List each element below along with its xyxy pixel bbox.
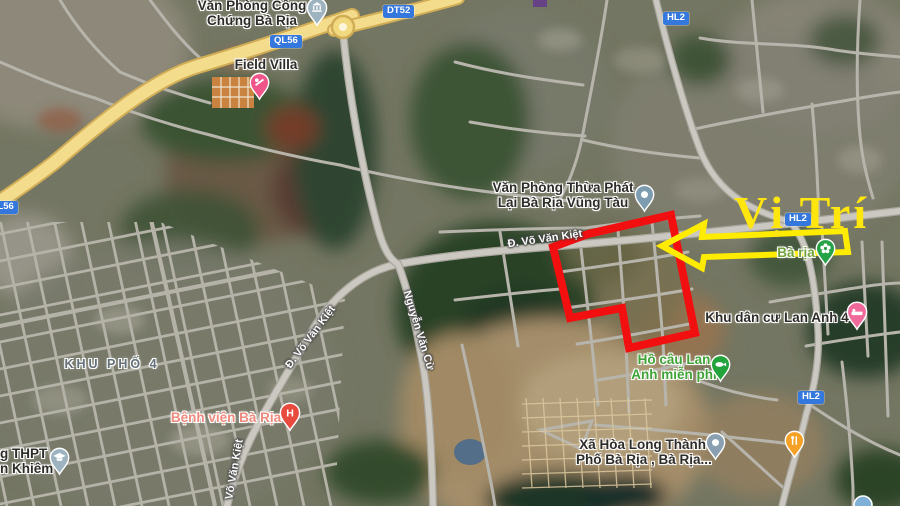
road-badge-ql56-partial: QL56: [0, 201, 18, 214]
label-ho-cau-lan-anh[interactable]: Hồ câu Lan Anh miễn phí: [631, 352, 717, 382]
label-xa-hoa-long[interactable]: Xã Hòa Long Thành Phố Bà Rịa , Bà Rịa...: [576, 437, 706, 467]
satellite-map-canvas[interactable]: DT52 QL56 QL56 HL2 HL2 HL2 Văn Phòng Côn…: [0, 0, 900, 506]
ba-ria-park-marker[interactable]: [815, 238, 836, 267]
label-ba-ria-park[interactable]: Bà rịa: [777, 245, 815, 260]
label-khu-pho-4: KHU PHỐ 4: [64, 357, 159, 372]
partial-marker[interactable]: [851, 494, 875, 506]
road-badge-hl2-top: HL2: [663, 12, 689, 25]
place-dot-icon: [712, 439, 719, 446]
museum-marker[interactable]: [306, 0, 328, 27]
road-badge-dt52: DT52: [383, 5, 414, 18]
label-van-phong-cong-chung[interactable]: Văn Phòng Công Chứng Bà Rịa: [198, 0, 307, 28]
lan-anh-4-marker[interactable]: [846, 301, 868, 331]
place-dot-icon: [641, 191, 648, 198]
ho-cau-marker[interactable]: [710, 354, 731, 383]
hospital-marker[interactable]: H: [279, 402, 301, 432]
hospital-icon: H: [286, 408, 294, 420]
label-thpt-school[interactable]: g THPT n Khiêm: [0, 446, 53, 476]
school-marker[interactable]: [49, 447, 70, 476]
road-badge-hl2-low: HL2: [798, 391, 824, 404]
map-graphics: [0, 0, 900, 506]
location-annotation-text: Vị Trí: [734, 188, 869, 238]
label-khu-dan-cu-lan-anh[interactable]: Khu dân cư Lan Anh 4: [705, 310, 849, 325]
restaurant-marker[interactable]: [784, 430, 805, 459]
xa-hoa-long-marker[interactable]: [705, 432, 726, 461]
label-field-villa[interactable]: Field Villa: [235, 57, 298, 72]
label-benh-vien-ba-ria[interactable]: Bệnh viện Bà Rịa: [171, 410, 281, 425]
thua-phat-marker[interactable]: [634, 184, 655, 213]
road-badge-ql56: QL56: [270, 35, 302, 48]
label-thua-phat[interactable]: Văn Phòng Thừa Phát Lại Bà Rịa Vũng Tàu: [492, 180, 633, 210]
field-villa-marker[interactable]: [249, 72, 270, 101]
